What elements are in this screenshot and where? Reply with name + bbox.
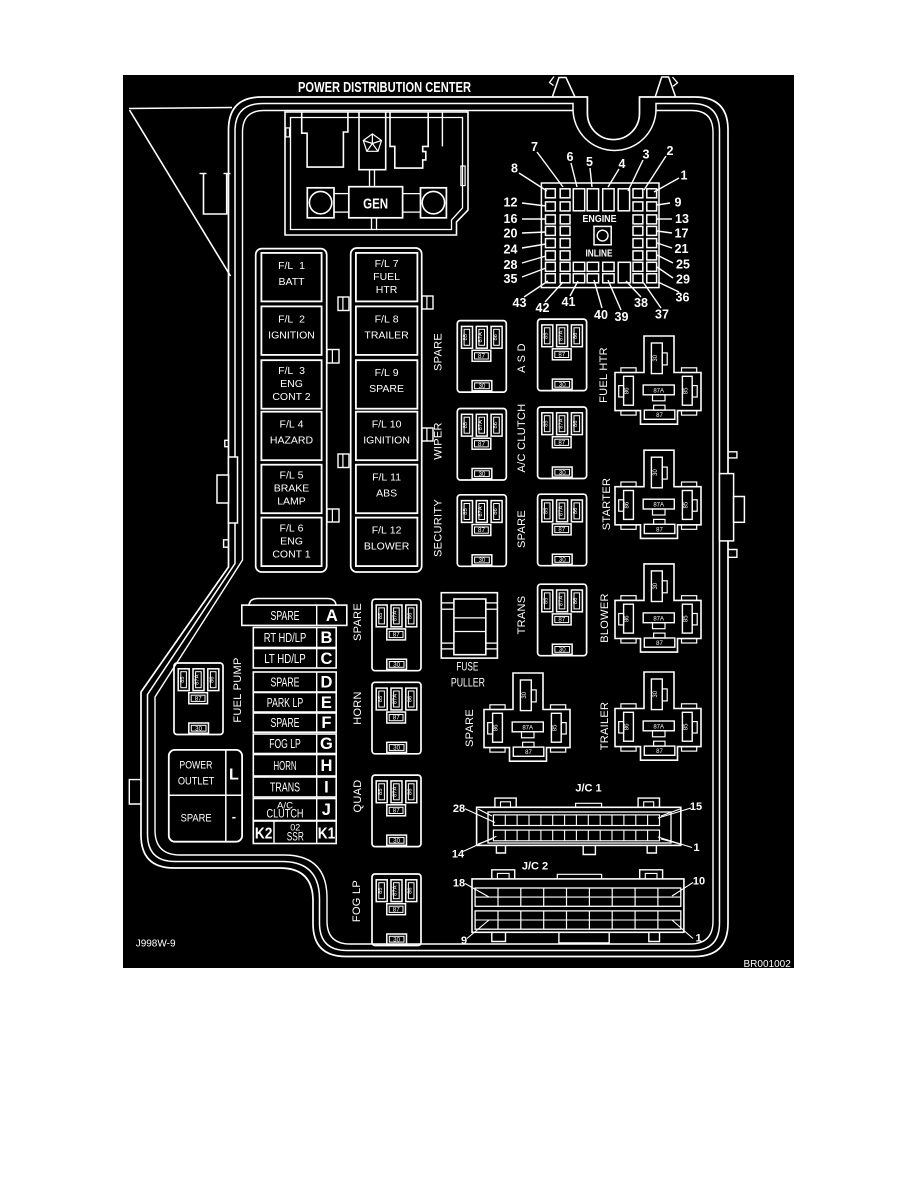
svg-text:87: 87 [656, 413, 663, 419]
svg-text:LT HD/LP: LT HD/LP [264, 652, 306, 666]
svg-text:30: 30 [653, 354, 659, 361]
svg-text:6: 6 [567, 150, 574, 164]
svg-text:9: 9 [675, 196, 682, 210]
svg-text:PARK LP: PARK LP [267, 696, 304, 710]
svg-text:F/L 7: F/L 7 [375, 258, 399, 270]
svg-text:29: 29 [676, 273, 690, 287]
svg-text:86: 86 [573, 598, 579, 604]
svg-text:BLOWER: BLOWER [364, 541, 410, 553]
svg-text:86: 86 [494, 724, 500, 731]
svg-text:SPARE: SPARE [369, 383, 404, 395]
svg-text:87: 87 [393, 632, 400, 639]
svg-text:A/C CLUTCH: A/C CLUTCH [516, 403, 528, 472]
svg-text:87: 87 [656, 749, 663, 755]
svg-text:86: 86 [493, 422, 499, 428]
svg-text:24: 24 [504, 243, 518, 257]
svg-text:30: 30 [195, 725, 202, 732]
svg-text:87: 87 [558, 617, 565, 624]
svg-text:GEN: GEN [363, 196, 388, 213]
svg-text:WIPER: WIPER [433, 422, 445, 460]
svg-text:86: 86 [408, 696, 414, 702]
svg-text:85: 85 [378, 613, 384, 619]
svg-text:36: 36 [676, 291, 690, 305]
svg-text:L: L [229, 767, 239, 784]
svg-text:F/L 2: F/L 2 [278, 313, 305, 325]
svg-text:87: 87 [478, 527, 485, 534]
svg-text:ABS: ABS [376, 488, 397, 500]
svg-text:CONT 1: CONT 1 [272, 549, 310, 561]
svg-text:87: 87 [558, 439, 565, 446]
svg-text:F/L 3: F/L 3 [278, 365, 305, 377]
svg-text:SPARE: SPARE [271, 676, 300, 690]
svg-text:87: 87 [393, 906, 400, 913]
svg-text:87A: 87A [558, 331, 564, 341]
svg-text:ENG: ENG [280, 536, 303, 548]
svg-text:37: 37 [655, 308, 669, 322]
svg-text:B: B [320, 629, 332, 647]
svg-text:30: 30 [559, 647, 566, 654]
svg-text:87A: 87A [478, 332, 484, 342]
svg-text:87A: 87A [558, 418, 564, 428]
svg-text:28: 28 [453, 803, 465, 815]
svg-text:30: 30 [559, 469, 566, 476]
svg-text:21: 21 [675, 242, 689, 256]
svg-text:85: 85 [463, 422, 469, 428]
svg-text:5: 5 [586, 155, 593, 169]
svg-text:40: 40 [594, 308, 608, 322]
svg-text:87A: 87A [478, 420, 484, 430]
svg-text:RT HD/LP: RT HD/LP [264, 631, 307, 645]
svg-text:41: 41 [562, 295, 576, 309]
svg-text:1: 1 [681, 169, 688, 183]
svg-text:86: 86 [625, 387, 631, 394]
svg-text:30: 30 [478, 471, 485, 478]
svg-text:4: 4 [619, 157, 626, 171]
svg-text:85: 85 [378, 696, 384, 702]
svg-text:85: 85 [544, 333, 550, 339]
svg-text:TRAILER: TRAILER [599, 702, 611, 751]
svg-text:SPARE: SPARE [516, 510, 528, 548]
svg-text:9: 9 [461, 935, 467, 947]
svg-text:30: 30 [393, 837, 400, 844]
svg-text:H: H [320, 757, 332, 775]
svg-text:F/L 5: F/L 5 [280, 470, 304, 482]
svg-text:D: D [320, 674, 332, 692]
svg-text:85: 85 [544, 598, 550, 604]
svg-text:FOG LP: FOG LP [269, 737, 301, 751]
svg-text:FUEL: FUEL [373, 271, 400, 283]
svg-text:86: 86 [493, 334, 499, 340]
svg-text:HTR: HTR [376, 284, 398, 296]
svg-text:14: 14 [452, 849, 465, 861]
svg-text:86: 86 [573, 508, 579, 514]
svg-text:FOG LP: FOG LP [351, 880, 363, 922]
svg-text:85: 85 [684, 387, 690, 394]
svg-text:39: 39 [615, 310, 629, 324]
svg-text:F/L 11: F/L 11 [372, 472, 401, 484]
svg-text:13: 13 [675, 212, 689, 226]
svg-text:IGNITION: IGNITION [363, 435, 410, 447]
svg-text:86: 86 [408, 789, 414, 795]
svg-text:86: 86 [408, 887, 414, 893]
svg-text:HAZARD: HAZARD [270, 435, 314, 447]
svg-text:SPARE: SPARE [271, 609, 300, 623]
svg-text:-: - [232, 809, 236, 824]
svg-text:I: I [324, 779, 329, 797]
svg-text:3: 3 [643, 148, 650, 162]
svg-text:F/L 1: F/L 1 [278, 260, 305, 272]
svg-text:87: 87 [195, 695, 202, 702]
svg-text:85: 85 [180, 676, 186, 682]
svg-text:30: 30 [478, 383, 485, 390]
svg-text:SPARE: SPARE [181, 813, 212, 825]
svg-text:87: 87 [393, 807, 400, 814]
svg-text:J/C 1: J/C 1 [575, 783, 601, 795]
svg-text:8: 8 [511, 162, 518, 176]
svg-text:87A: 87A [653, 388, 664, 394]
svg-text:SPARE: SPARE [271, 716, 300, 730]
svg-text:85: 85 [378, 789, 384, 795]
svg-text:F/L 8: F/L 8 [375, 313, 399, 325]
svg-text:BRAKE: BRAKE [274, 483, 310, 495]
svg-text:85: 85 [553, 724, 559, 731]
svg-text:30: 30 [393, 745, 400, 752]
svg-text:SSR: SSR [287, 832, 304, 844]
svg-text:87A: 87A [393, 611, 399, 621]
svg-text:SECURITY: SECURITY [433, 499, 445, 557]
svg-text:16: 16 [504, 212, 518, 226]
svg-text:30: 30 [393, 936, 400, 943]
svg-text:85: 85 [544, 420, 550, 426]
svg-text:87A: 87A [558, 596, 564, 606]
svg-text:A S D: A S D [516, 343, 528, 373]
svg-text:85: 85 [544, 508, 550, 514]
svg-text:87A: 87A [393, 787, 399, 797]
svg-text:PULLER: PULLER [451, 678, 485, 690]
svg-text:J: J [322, 801, 331, 819]
svg-text:86: 86 [625, 723, 631, 730]
svg-text:BATT: BATT [278, 276, 305, 288]
svg-text:30: 30 [653, 582, 659, 589]
svg-text:F/L 4: F/L 4 [280, 419, 304, 431]
svg-text:F: F [321, 714, 331, 732]
svg-text:J/C 2: J/C 2 [522, 861, 548, 873]
svg-text:30: 30 [653, 690, 659, 697]
svg-text:17: 17 [675, 227, 689, 241]
svg-text:ENGINE: ENGINE [583, 214, 617, 225]
svg-text:FUEL HTR: FUEL HTR [598, 347, 610, 403]
svg-text:BLOWER: BLOWER [599, 593, 611, 642]
svg-text:30: 30 [522, 691, 528, 698]
svg-text:86: 86 [493, 508, 499, 514]
svg-text:87: 87 [478, 441, 485, 448]
svg-text:25: 25 [676, 258, 690, 272]
svg-text:CLUTCH: CLUTCH [267, 809, 304, 821]
svg-text:85: 85 [684, 501, 690, 508]
svg-text:87A: 87A [653, 616, 664, 622]
svg-text:87: 87 [525, 750, 532, 756]
svg-text:30: 30 [393, 662, 400, 669]
svg-text:30: 30 [559, 557, 566, 564]
svg-text:43: 43 [513, 296, 527, 310]
svg-text:K2: K2 [255, 826, 273, 843]
svg-text:QUAD: QUAD [352, 780, 364, 813]
svg-text:CONT 2: CONT 2 [272, 391, 310, 403]
svg-text:A: A [326, 607, 338, 625]
svg-text:87A: 87A [478, 506, 484, 516]
svg-text:IGNITION: IGNITION [268, 329, 315, 341]
svg-text:SPARE: SPARE [352, 603, 364, 641]
svg-text:INLINE: INLINE [586, 248, 613, 259]
svg-text:OUTLET: OUTLET [178, 776, 215, 788]
svg-text:87: 87 [478, 353, 485, 360]
svg-text:86: 86 [573, 333, 579, 339]
svg-text:F/L 10: F/L 10 [372, 419, 402, 431]
svg-text:10: 10 [693, 876, 705, 888]
svg-text:87: 87 [558, 527, 565, 534]
svg-text:87A: 87A [393, 694, 399, 704]
svg-text:STARTER: STARTER [601, 478, 613, 530]
svg-text:87A: 87A [558, 506, 564, 516]
svg-text:87A: 87A [653, 724, 664, 730]
svg-text:FUSE: FUSE [456, 662, 478, 674]
svg-text:F/L 9: F/L 9 [375, 367, 399, 379]
svg-text:SPARE: SPARE [433, 333, 445, 371]
svg-text:38: 38 [634, 296, 648, 310]
svg-text:BR001002: BR001002 [744, 959, 792, 970]
svg-text:LAMP: LAMP [277, 496, 306, 508]
svg-text:87A: 87A [393, 885, 399, 895]
svg-text:J998W-9: J998W-9 [136, 939, 176, 950]
svg-text:SPARE: SPARE [464, 709, 476, 747]
svg-text:HORN: HORN [352, 691, 364, 725]
svg-text:30: 30 [653, 469, 659, 476]
svg-text:K1: K1 [318, 826, 336, 843]
svg-text:85: 85 [463, 508, 469, 514]
svg-text:TRANS: TRANS [516, 596, 528, 635]
svg-text:12: 12 [504, 196, 518, 210]
svg-text:20: 20 [504, 227, 518, 241]
svg-text:86: 86 [210, 676, 216, 682]
svg-text:TRANS: TRANS [270, 781, 300, 795]
svg-text:G: G [320, 735, 333, 753]
svg-text:87: 87 [656, 641, 663, 647]
svg-text:30: 30 [478, 557, 485, 564]
svg-text:87: 87 [393, 715, 400, 722]
svg-text:POWER: POWER [179, 760, 212, 772]
svg-text:F/L 12: F/L 12 [372, 525, 402, 537]
svg-text:85: 85 [684, 723, 690, 730]
svg-text:86: 86 [408, 613, 414, 619]
svg-text:87A: 87A [522, 725, 533, 731]
svg-text:E: E [321, 694, 332, 712]
svg-text:18: 18 [453, 878, 465, 890]
svg-text:F/L 6: F/L 6 [280, 523, 304, 535]
svg-text:15: 15 [690, 801, 702, 813]
svg-text:87: 87 [656, 527, 663, 533]
svg-text:35: 35 [504, 272, 518, 286]
svg-text:30: 30 [559, 381, 566, 388]
svg-text:87: 87 [558, 351, 565, 358]
svg-text:85: 85 [463, 334, 469, 340]
svg-text:87A: 87A [195, 674, 201, 684]
svg-text:TRAILER: TRAILER [364, 329, 409, 341]
svg-text:85: 85 [684, 615, 690, 622]
svg-text:86: 86 [625, 615, 631, 622]
svg-text:HORN: HORN [274, 759, 297, 773]
svg-text:86: 86 [625, 501, 631, 508]
svg-text:85: 85 [378, 887, 384, 893]
svg-text:7: 7 [531, 140, 538, 154]
svg-text:42: 42 [536, 301, 550, 315]
svg-text:ENG: ENG [280, 378, 303, 390]
svg-text:C: C [320, 650, 332, 668]
svg-text:FUEL PUMP: FUEL PUMP [232, 657, 244, 722]
svg-text:87A: 87A [653, 503, 664, 509]
svg-text:28: 28 [504, 258, 518, 272]
svg-text:1: 1 [695, 933, 701, 945]
svg-text:86: 86 [573, 420, 579, 426]
svg-text:POWER DISTRIBUTION CENTER: POWER DISTRIBUTION CENTER [298, 80, 471, 96]
svg-text:2: 2 [667, 144, 674, 158]
svg-text:1: 1 [693, 842, 699, 854]
